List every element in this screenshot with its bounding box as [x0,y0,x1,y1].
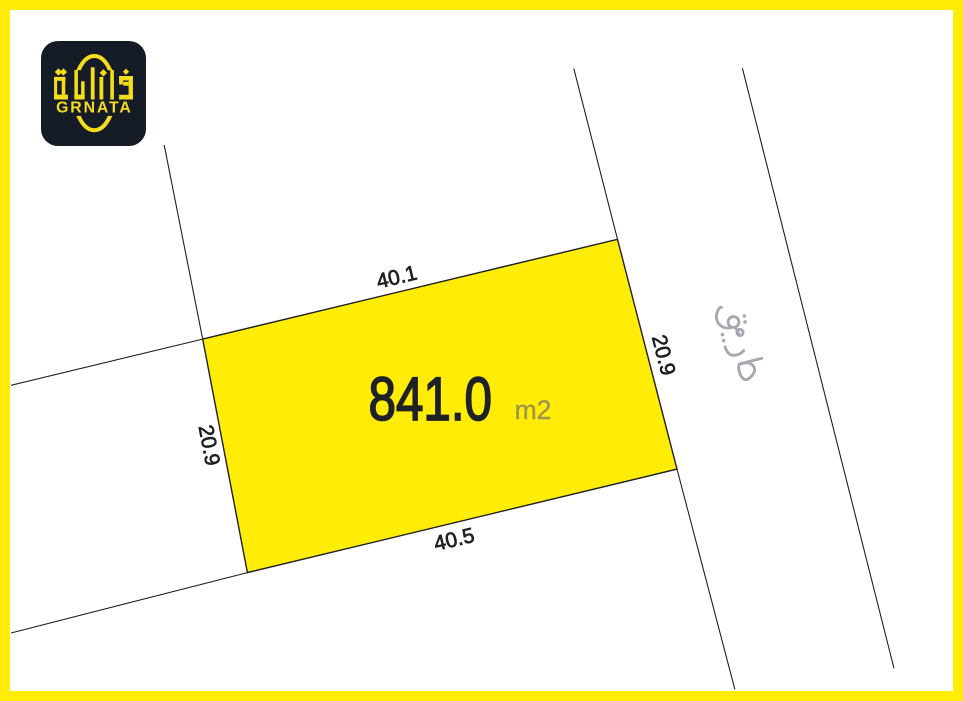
svg-text:40.5: 40.5 [432,524,477,556]
svg-text:GRNATA: GRNATA [56,100,133,117]
svg-text:m2: m2 [515,395,552,425]
svg-text:841.0: 841.0 [369,365,493,433]
